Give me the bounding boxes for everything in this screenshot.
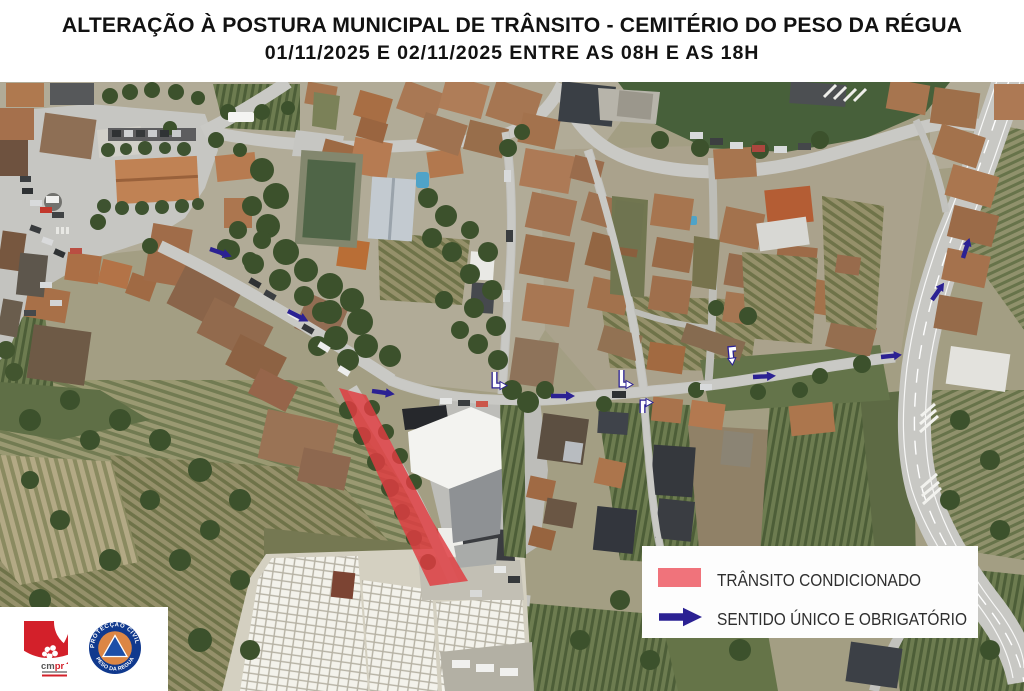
svg-text:SENTIDO ÚNICO E OBRIGATÓRIO: SENTIDO ÚNICO E OBRIGATÓRIO	[717, 608, 967, 629]
svg-text:cmpr: cmpr	[41, 661, 65, 672]
svg-text:TRÂNSITO CONDICIONADO: TRÂNSITO CONDICIONADO	[717, 570, 921, 590]
